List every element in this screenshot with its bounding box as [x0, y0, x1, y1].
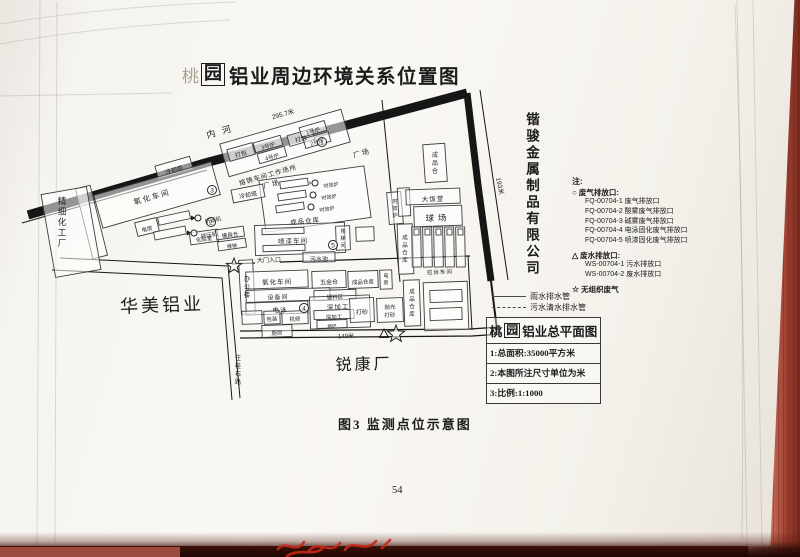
machine-circle-icon [312, 180, 318, 186]
legend-note-label: 注: [572, 177, 722, 187]
legend-item: FQ-00704-5 喷漆固化废气排放口 [572, 236, 722, 246]
map-building-box [414, 229, 419, 235]
gas-outlet-icon: ○ [572, 188, 577, 198]
machine-circle-icon [308, 204, 314, 210]
monitoring-point-number: 5 [331, 242, 335, 249]
map-building-box [158, 211, 191, 225]
legend: 注: ○废气排放口: FQ-00704-1 废气排放口 FQ-00704-2 酸… [572, 177, 722, 295]
sewage-pipe-row: 污水清水排水管 [492, 302, 622, 313]
map-label: 大门入口 [257, 256, 281, 264]
fugitive-gas-point-icon [387, 325, 404, 341]
map-label: 往桂石路 [235, 354, 241, 386]
figure-caption: 图3 监测点位示意图 [338, 414, 472, 433]
info-title-prefix: 桃 [490, 321, 503, 340]
sewage-pipe-label: 污水清水排水管 [530, 303, 586, 312]
map-label: 193米 [494, 177, 507, 196]
map-label: 楼梯 [227, 242, 238, 250]
legend-item: FQ-00704-4 电泳固化废气排放口 [572, 226, 722, 236]
machine-circle-icon [195, 215, 201, 221]
rainwater-pipe-label: 雨水排水管 [530, 292, 570, 301]
legend-item: FQ-00704-3 碱雾废气排放口 [572, 217, 722, 227]
title-faint-char: 桃 [182, 62, 199, 87]
map-building-box [430, 289, 462, 302]
map-label: 华美铝业 [120, 294, 205, 317]
legend-item: WS-00704-2 废水排放口 [572, 270, 722, 280]
machine-circle-icon [310, 192, 316, 198]
map-building-box [262, 227, 304, 234]
map-building-box [423, 281, 469, 331]
map-building-box [425, 229, 430, 235]
map-building-box [447, 229, 452, 235]
map-label: 时效炉 [392, 198, 397, 219]
photo-background: 12345 内河295.7米193米140米冷却塔打包3号炉4号炉打包1号炉2号… [0, 0, 800, 557]
map-label: 拉丝车间 [427, 267, 453, 276]
map-building-box [430, 307, 462, 320]
map-building-box [356, 227, 374, 242]
map-label: 锐康厂 [335, 355, 392, 374]
legend-water-title: 废水排放口: [580, 251, 620, 260]
info-row-scale: 3:比例:1:1000 [487, 384, 600, 403]
rainwater-pipe-row: 雨水排水管 [492, 291, 622, 302]
map-label: 厂场 [352, 146, 372, 160]
machine-circle-icon [191, 230, 197, 236]
pipe-legend: 雨水排水管 污水清水排水管 [492, 291, 622, 313]
map-building-box [242, 311, 262, 325]
legend-gas-title: 废气排放口: [579, 188, 619, 197]
right-company-name: 锴骏金属制品有限公司 [521, 112, 541, 302]
map-building-box [458, 229, 463, 235]
map-label: 挤压机 [204, 214, 222, 225]
map-label: 精细化工厂 [58, 196, 67, 248]
legend-item: WS-00704-1 污水排放口 [572, 260, 722, 270]
map-label: 成品仓库 [402, 234, 408, 264]
legend-item: FQ-00704-1 废气排放口 [572, 197, 722, 207]
info-title-text: 铝业总平面图 [522, 321, 597, 340]
monitoring-point-number: 4 [302, 305, 306, 312]
map-building-box [436, 229, 441, 235]
monitoring-point-number: 3 [210, 187, 214, 194]
info-row-units: 2:本图所注尺寸单位为米 [487, 364, 600, 384]
right-road-band [467, 93, 491, 281]
water-outlet-icon: △ [572, 251, 578, 261]
map-label: 球场 [425, 213, 450, 224]
map-label: 办公楼 [244, 275, 250, 299]
info-box-title: 桃 园 铝业总平面图 [487, 318, 600, 344]
title-boxed-char: 园 [201, 63, 225, 86]
title-text: 铝业周边环境关系位置图 [229, 60, 460, 89]
map-label: 140米 [338, 332, 354, 340]
desk-edge-strip [0, 547, 180, 557]
plan-info-box: 桃 园 铝业总平面图 1:总面积:35000平方米 2:本图所注尺寸单位为米 3… [486, 317, 601, 404]
map-label: 楼梯间 [340, 228, 345, 249]
map-label: 295.7米 [271, 106, 296, 121]
left-road [52, 258, 240, 400]
map-label: 成品仓 [432, 151, 438, 175]
solid-line-icon [492, 296, 526, 297]
info-row-area: 1:总面积:35000平方米 [487, 344, 600, 364]
page-title: 桃 园 铝业周边环境关系位置图 [182, 60, 460, 89]
legend-item: FQ-00704-2 酸雾废气排放口 [572, 207, 722, 217]
dashed-line-icon [492, 307, 526, 308]
legend-water-header: △废水排放口: [572, 251, 722, 261]
page-number: 54 [392, 485, 403, 496]
map-label: 内河 [205, 121, 239, 140]
map-label: 成品仓库 [409, 288, 415, 319]
info-title-boxed-char: 园 [504, 323, 520, 338]
legend-gas-header: ○废气排放口: [572, 188, 722, 198]
